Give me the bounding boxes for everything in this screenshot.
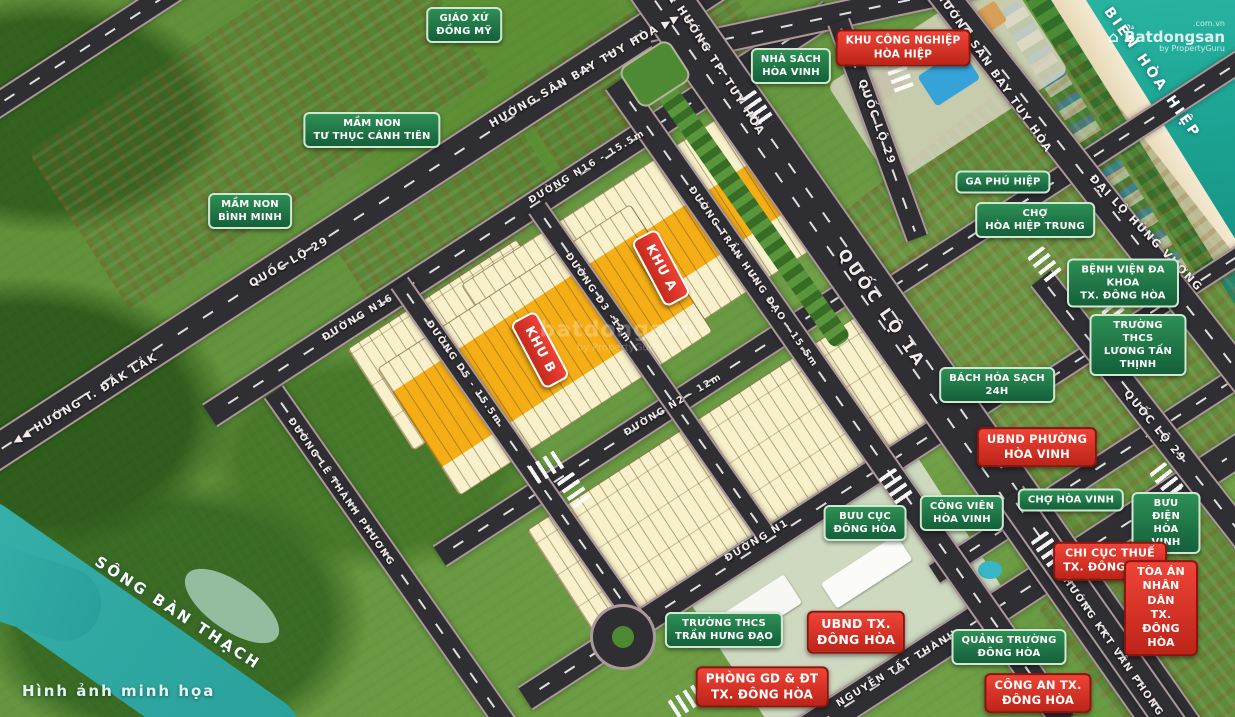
badge-khu-cong-nghiep-hoa-hiep: KHU CÔNG NGHIỆP HÒA HIỆP: [836, 29, 971, 66]
badge-nha-sach-hoa-vinh: NHÀ SÁCH HÒA VINH: [751, 48, 831, 84]
watermark-center-brand: batdongsan: [540, 318, 697, 342]
watermark-corner: .com.vn ⌂ Batdongsan by PropertyGuru: [1100, 20, 1225, 54]
badge-mam-non-binh-minh: MẦM NON BÌNH MINH: [208, 193, 292, 229]
badge-phong-gd-dt: PHÒNG GD & ĐT TX. ĐÔNG HÒA: [696, 666, 829, 707]
badge-cho-hoa-hiep-trung: CHỢ HÒA HIỆP TRUNG: [975, 202, 1095, 238]
watermark-brand: Batdongsan: [1124, 28, 1225, 46]
badge-cong-an-tx-dong-hoa: CÔNG AN TX. ĐÔNG HÒA: [984, 673, 1091, 713]
badge-cho-hoa-vinh: CHỢ HÒA VINH: [1018, 489, 1124, 512]
masterplan-map: HƯỚNG SÂN BAY TUY HÒA ▶▶ ▲▲ HƯỚNG TP. TU…: [0, 0, 1235, 717]
badge-giao-xu-dong-my: GIÁO XỨ ĐỒNG MỸ: [426, 7, 502, 43]
badge-truong-thcs-luong-tan-thinh: TRƯỜNG THCS LƯƠNG TẤN THỊNH: [1090, 314, 1187, 376]
badge-buu-cuc-dong-hoa: BƯU CỤC ĐÔNG HÒA: [824, 505, 907, 541]
badge-cong-vien-hoa-vinh: CÔNG VIÊN HÒA VINH: [920, 495, 1004, 531]
park-pond: [978, 561, 1002, 579]
badge-ubnd-phuong-hoa-vinh: UBND PHƯỜNG HÒA VINH: [977, 427, 1097, 467]
badge-ubnd-tx-dong-hoa: UBND TX. ĐÔNG HÒA: [807, 611, 905, 654]
watermark-domain: .com.vn: [1100, 20, 1225, 29]
badge-truong-thcs-tran-hung-dao: TRƯỜNG THCS TRẦN HƯNG ĐẠO: [665, 612, 783, 648]
batdongsan-logo-icon: ⌂: [1108, 28, 1119, 46]
badge-quang-truong-dong-hoa: QUẢNG TRƯỜNG ĐÔNG HÒA: [951, 629, 1066, 665]
badge-toa-an-nhan-dan: TÒA ÁN NHÂN DÂN TX. ĐÔNG HÒA: [1124, 560, 1198, 656]
badge-benh-vien-da-khoa: BỆNH VIỆN ĐA KHOA TX. ĐÔNG HÒA: [1067, 259, 1179, 308]
watermark-center-byline: by PropertyGuru: [540, 343, 697, 354]
illustration-note: Hình ảnh minh họa: [22, 682, 215, 700]
badge-mam-non-tu-thuc-canh-tien: MẦM NON TƯ THỤC CÁNH TIÊN: [303, 112, 440, 148]
badge-ga-phu-hiep: GA PHÚ HIỆP: [955, 171, 1050, 194]
roundabout: [590, 604, 656, 670]
government-building: [821, 535, 913, 609]
watermark-byline: by PropertyGuru: [1100, 45, 1225, 54]
watermark-center: batdongsan by PropertyGuru: [540, 318, 697, 353]
badge-bach-hoa-sach-24h: BÁCH HÓA SẠCH 24H: [939, 367, 1055, 403]
